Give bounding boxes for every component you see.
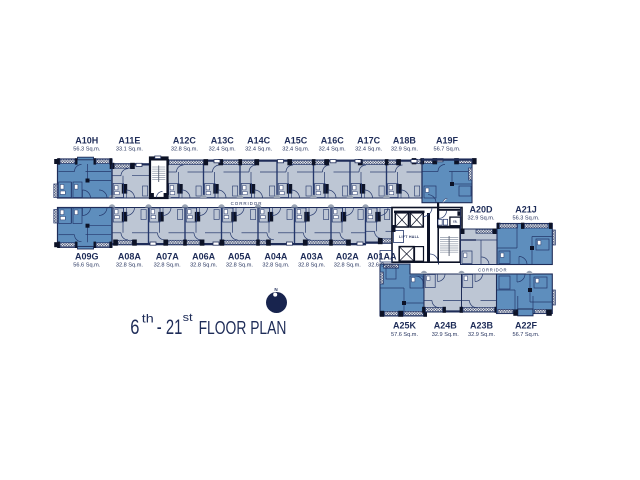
svg-text:A01AA: A01AA [367, 252, 397, 262]
svg-text:A03A: A03A [300, 252, 324, 262]
svg-text:A23B: A23B [470, 321, 494, 331]
svg-text:32.8 Sq.m.: 32.8 Sq.m. [190, 263, 217, 269]
svg-text:FLOOR PLAN: FLOOR PLAN [199, 317, 287, 338]
svg-text:A05A: A05A [228, 252, 252, 262]
svg-text:32.8 Sq.m.: 32.8 Sq.m. [334, 263, 361, 269]
svg-text:56.7 Sq.m.: 56.7 Sq.m. [433, 147, 460, 153]
svg-text:A15C: A15C [284, 136, 308, 146]
svg-text:A17C: A17C [357, 136, 381, 146]
svg-text:A19F: A19F [436, 136, 459, 146]
svg-text:th: th [142, 312, 154, 325]
svg-text:A11E: A11E [118, 136, 140, 146]
svg-text:32.8 Sq.m.: 32.8 Sq.m. [171, 147, 198, 153]
svg-text:32.4 Sq.m.: 32.4 Sq.m. [209, 147, 236, 153]
svg-text:st: st [183, 312, 193, 324]
svg-text:33.1 Sq.m.: 33.1 Sq.m. [116, 147, 143, 153]
svg-text:A06A: A06A [192, 252, 216, 262]
svg-text:32.8 Sq.m.: 32.8 Sq.m. [226, 263, 253, 269]
svg-text:32.8 Sq.m.: 32.8 Sq.m. [116, 263, 143, 269]
svg-text:A21J: A21J [515, 205, 537, 215]
svg-text:LIFT HALL: LIFT HALL [399, 235, 420, 239]
svg-text:A18B: A18B [393, 136, 417, 146]
svg-text:32.8 Sq.m.: 32.8 Sq.m. [298, 263, 325, 269]
svg-text:32.4 Sq.m.: 32.4 Sq.m. [319, 147, 346, 153]
svg-text:32.8 Sq.m.: 32.8 Sq.m. [262, 263, 289, 269]
svg-text:56.6 Sq.m.: 56.6 Sq.m. [73, 263, 100, 269]
svg-text:A04A: A04A [264, 252, 288, 262]
svg-text:A22F: A22F [515, 321, 538, 331]
svg-text:A12C: A12C [173, 136, 197, 146]
svg-text:56.7 Sq.m.: 56.7 Sq.m. [512, 332, 539, 338]
svg-text:ca.: ca. [453, 220, 458, 224]
svg-text:32.4 Sq.m.: 32.4 Sq.m. [355, 147, 382, 153]
svg-text:56.3 Sq.m.: 56.3 Sq.m. [73, 147, 100, 153]
svg-text:32.9 Sq.m.: 32.9 Sq.m. [468, 332, 495, 338]
svg-text:A13C: A13C [211, 136, 235, 146]
svg-text:CORRIDOR: CORRIDOR [478, 267, 507, 272]
svg-text:32.6 Sq.m.: 32.6 Sq.m. [368, 263, 395, 269]
svg-text:32.4 Sq.m.: 32.4 Sq.m. [282, 147, 309, 153]
svg-text:A07A: A07A [156, 252, 180, 262]
svg-text:A14C: A14C [247, 136, 271, 146]
svg-text:- 21: - 21 [157, 316, 183, 339]
svg-text:32.8 Sq.m.: 32.8 Sq.m. [154, 263, 181, 269]
svg-text:57.6 Sq.m.: 57.6 Sq.m. [391, 332, 418, 338]
svg-text:32.9 Sq.m.: 32.9 Sq.m. [467, 216, 494, 222]
svg-text:A16C: A16C [321, 136, 345, 146]
svg-text:6: 6 [130, 316, 139, 339]
svg-text:A08A: A08A [118, 252, 142, 262]
svg-text:A25K: A25K [393, 321, 417, 331]
svg-text:32.9 Sq.m.: 32.9 Sq.m. [432, 332, 459, 338]
svg-text:A20D: A20D [469, 205, 493, 215]
svg-text:32.4 Sq.m.: 32.4 Sq.m. [245, 147, 272, 153]
svg-text:A09G: A09G [75, 252, 99, 262]
svg-text:A02A: A02A [336, 252, 360, 262]
svg-text:32.9 Sq.m.: 32.9 Sq.m. [391, 147, 418, 153]
svg-text:56.3 Sq.m.: 56.3 Sq.m. [512, 216, 539, 222]
svg-text:A10H: A10H [75, 136, 98, 146]
svg-text:A24B: A24B [434, 321, 458, 331]
